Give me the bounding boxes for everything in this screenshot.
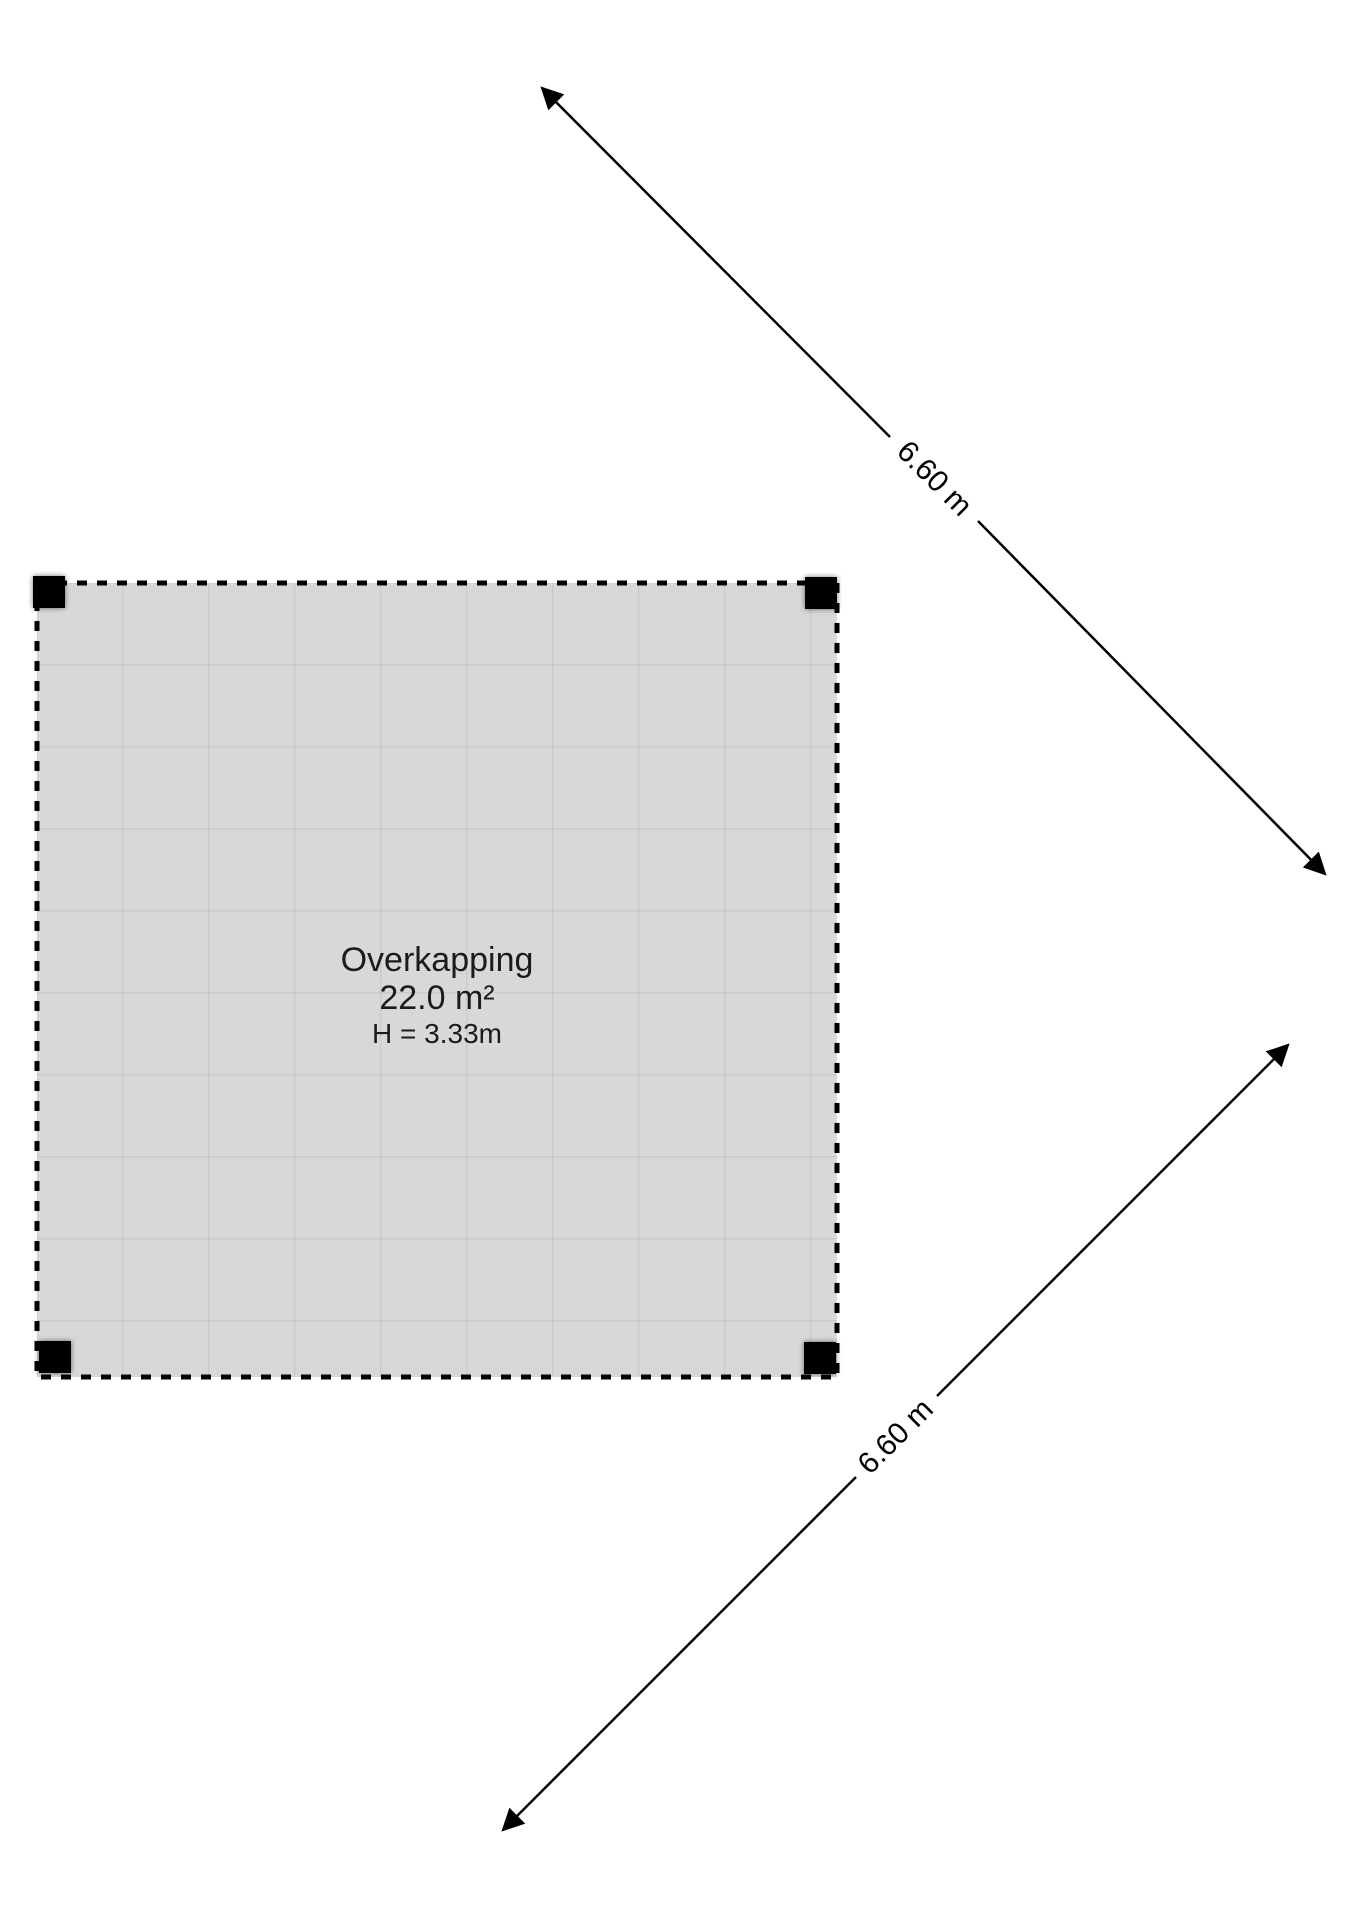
structure-area: 22.0 m² [137, 979, 737, 1017]
structure-height: H = 3.33m [137, 1017, 737, 1050]
corner-post-top-right [805, 577, 837, 609]
corner-post-bottom-left [39, 1341, 71, 1373]
corner-post-top-left [33, 576, 65, 608]
corner-post-bottom-right [804, 1342, 836, 1374]
structure-label-block: Overkapping 22.0 m² H = 3.33m [137, 941, 737, 1050]
dimension-arrow-bottom-lower-segment [503, 1477, 856, 1830]
dimension-arrow-top-lower-segment [978, 521, 1325, 874]
dimension-arrow-top-upper-segment [542, 88, 890, 437]
floorplan-canvas: Overkapping 22.0 m² H = 3.33m 6.60 m 6.6… [0, 0, 1358, 1920]
structure-name: Overkapping [137, 941, 737, 979]
dimension-arrow-bottom-upper-segment [937, 1045, 1288, 1396]
